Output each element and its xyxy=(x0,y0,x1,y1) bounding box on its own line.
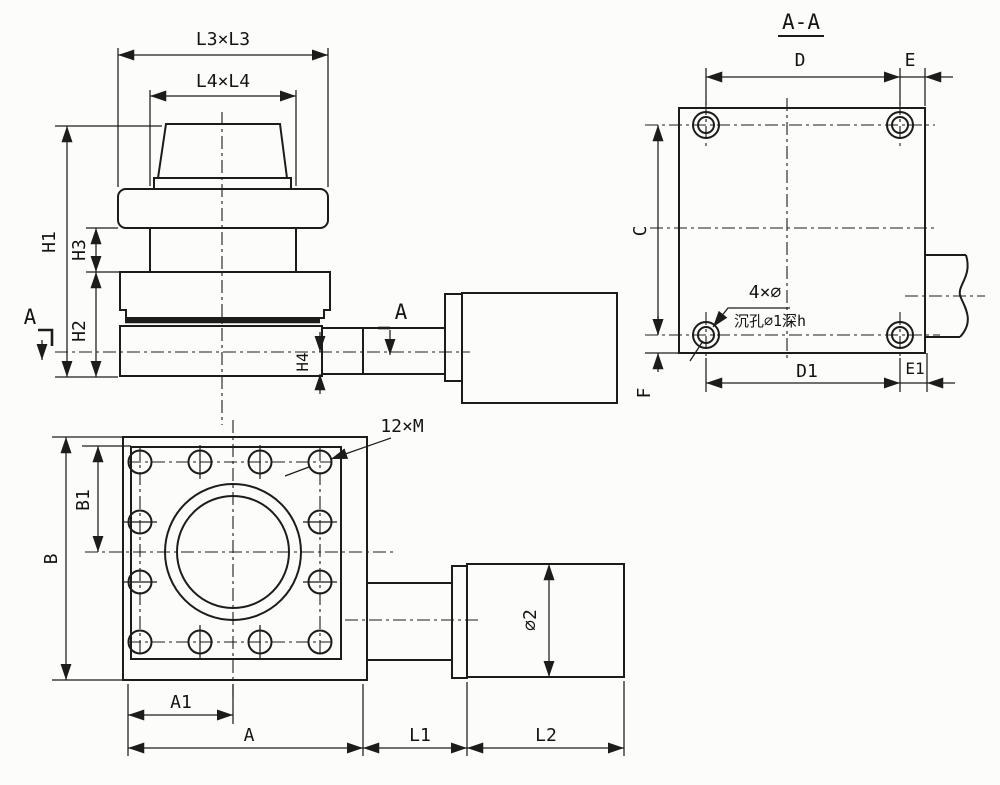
dim-label-a1: A1 xyxy=(170,692,192,713)
thread-note-stub xyxy=(285,467,309,476)
dim-label-b: B xyxy=(41,554,62,565)
section-letter-shaft: A xyxy=(395,300,408,324)
dim-label-h2: H2 xyxy=(69,320,90,342)
dim-label-d1: D1 xyxy=(796,361,818,382)
dim-label-b1: B1 xyxy=(73,489,94,511)
front-view: 12×M B B1 A1 A L1 L2 ∅2 xyxy=(41,416,624,756)
dim-label-l4: L4×L4 xyxy=(196,71,250,92)
base-plate xyxy=(120,326,322,376)
drawing-sheet: L3×L3 L4×L4 H1 H3 H2 H4 A A A-A xyxy=(0,0,1000,785)
section-title: A-A xyxy=(782,10,820,34)
section-cut-stub-left xyxy=(38,330,52,346)
gear-housing xyxy=(120,272,330,318)
motor-end-cap xyxy=(445,294,462,381)
h3-extension-lines xyxy=(86,228,120,272)
fv-shaft-edges xyxy=(367,583,452,660)
dim-label-e: E xyxy=(905,50,916,71)
dim-label-e1: E1 xyxy=(905,359,924,378)
dim-label-h4: H4 xyxy=(293,352,312,371)
output-shaft xyxy=(322,328,445,374)
b-extension-lines xyxy=(52,437,131,680)
dim-label-d: D xyxy=(795,50,806,71)
d-e-extension-lines xyxy=(706,68,925,106)
hole-note-line1: 4×∅ xyxy=(749,282,782,303)
dim-label-f: F xyxy=(634,388,655,399)
neck-block xyxy=(150,228,296,272)
side-view: L3×L3 L4×L4 H1 H3 H2 H4 A A xyxy=(24,29,617,425)
thread-note-label: 12×M xyxy=(380,416,424,437)
dim-label-phi2: ∅2 xyxy=(520,609,541,631)
section-letter-left: A xyxy=(24,305,37,329)
dim-label-c: C xyxy=(630,226,651,237)
dim-label-h1: H1 xyxy=(39,231,60,253)
l4-extension-lines xyxy=(150,90,296,186)
fv-motor-end-cap xyxy=(452,566,467,678)
motor-body xyxy=(462,293,617,403)
section-view-a-a: A-A D E D1 E1 xyxy=(630,10,985,398)
fv-motor-body xyxy=(467,564,624,677)
hole-note-line2: 沉孔∅1深h xyxy=(734,312,806,330)
dim-label-h3: H3 xyxy=(69,239,90,261)
dim-label-l3: L3×L3 xyxy=(196,29,250,50)
dim-label-l2: L2 xyxy=(535,725,557,746)
dim-label-l1: L1 xyxy=(409,725,431,746)
mounting-flange xyxy=(118,189,328,228)
technical-drawing: L3×L3 L4×L4 H1 H3 H2 H4 A A A-A xyxy=(0,0,1000,785)
dim-label-a: A xyxy=(244,725,255,746)
fv-boss-face xyxy=(131,447,341,659)
